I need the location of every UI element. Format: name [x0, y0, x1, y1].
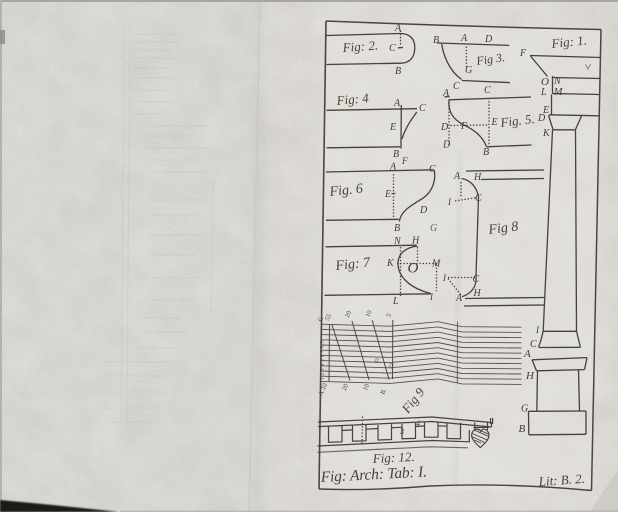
- svg-text:K: K: [386, 258, 395, 269]
- svg-text:A: A: [389, 162, 397, 173]
- svg-text:D: D: [419, 205, 428, 216]
- svg-text:A: A: [455, 293, 463, 304]
- svg-text:B: B: [519, 423, 526, 435]
- svg-text:G: G: [465, 65, 472, 76]
- svg-text:G: G: [521, 404, 528, 415]
- svg-text:E: E: [389, 122, 396, 133]
- svg-text:N: N: [393, 236, 402, 247]
- svg-text:B: B: [433, 35, 439, 46]
- svg-text:O: O: [408, 261, 419, 277]
- svg-text:C: C: [389, 43, 396, 54]
- svg-text:4: 4: [416, 419, 420, 428]
- svg-text:K: K: [542, 128, 551, 139]
- svg-text:C: C: [475, 193, 482, 204]
- svg-text:D: D: [537, 113, 546, 124]
- svg-text:1 2 3 4 5 6 7 8 9: 1 2 3 4 5 6 7 8 9: [321, 341, 326, 380]
- svg-text:B: B: [483, 147, 489, 158]
- svg-text:A: A: [394, 23, 402, 34]
- svg-text:G: G: [430, 223, 437, 234]
- svg-text:F: F: [401, 156, 408, 166]
- svg-text:Fig: 2.: Fig: 2.: [341, 38, 378, 56]
- svg-text:L: L: [540, 87, 547, 98]
- svg-text:A: A: [442, 88, 450, 99]
- svg-text:C: C: [453, 81, 460, 92]
- svg-text:H: H: [473, 172, 482, 183]
- svg-text:F: F: [519, 48, 527, 59]
- svg-text:A: A: [460, 33, 468, 44]
- svg-text:D: D: [442, 140, 451, 151]
- svg-text:B: B: [395, 66, 401, 77]
- svg-text:C: C: [530, 339, 537, 350]
- svg-text:A: A: [523, 348, 531, 360]
- svg-text:E: E: [384, 189, 391, 200]
- svg-text:H: H: [473, 288, 482, 299]
- svg-text:C: C: [484, 85, 491, 96]
- svg-text:N: N: [553, 76, 562, 87]
- svg-text:3: 3: [399, 427, 404, 436]
- svg-text:L: L: [392, 296, 399, 307]
- svg-text:B: B: [394, 223, 400, 234]
- svg-text:D: D: [440, 122, 449, 133]
- svg-text:A: A: [453, 171, 461, 182]
- svg-text:M: M: [431, 259, 441, 270]
- svg-text:C: C: [419, 103, 426, 114]
- svg-text:H: H: [411, 236, 420, 247]
- svg-text:B: B: [393, 149, 399, 160]
- svg-text:C: C: [429, 164, 436, 175]
- svg-text:C: C: [473, 274, 480, 285]
- svg-text:M: M: [553, 87, 563, 98]
- svg-text:D: D: [484, 34, 493, 45]
- svg-text:F: F: [460, 121, 468, 132]
- svg-text:Fig: 4: Fig: 4: [335, 90, 370, 108]
- svg-text:A: A: [393, 98, 401, 109]
- svg-text:H: H: [525, 370, 535, 382]
- svg-text:E: E: [491, 117, 498, 128]
